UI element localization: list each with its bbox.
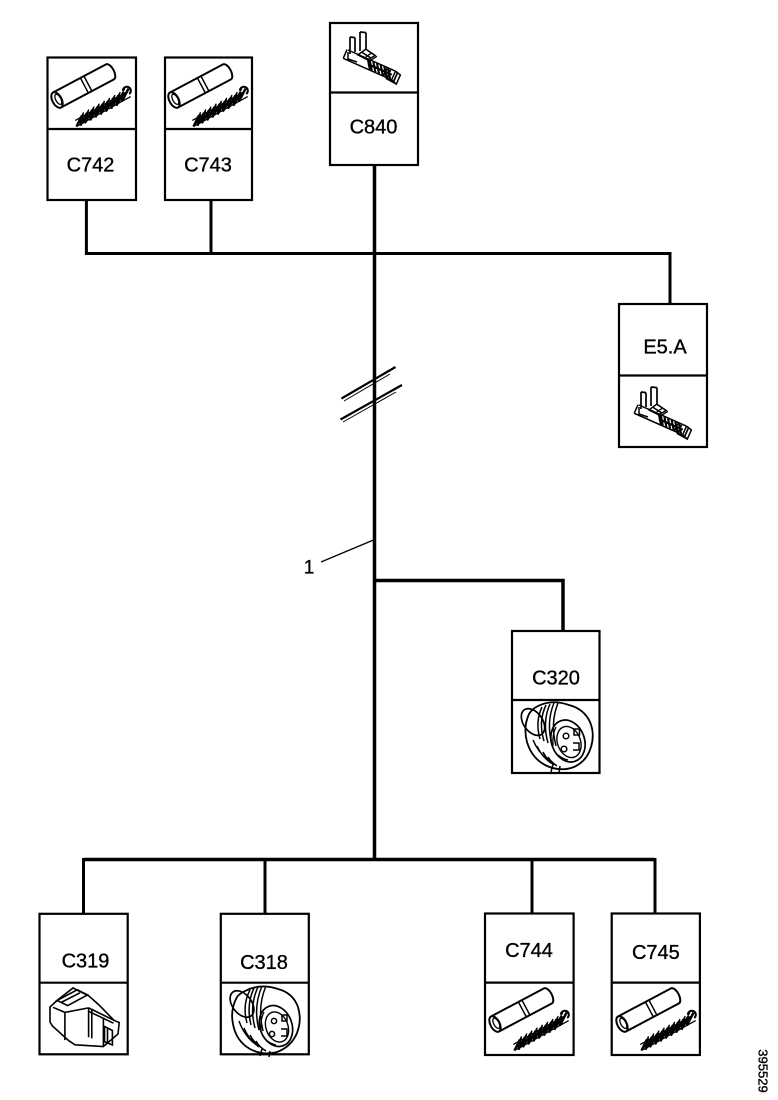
svg-text:395529: 395529 bbox=[756, 1049, 771, 1092]
svg-text:C744: C744 bbox=[505, 940, 553, 962]
svg-text:C743: C743 bbox=[184, 155, 232, 177]
svg-text:C840: C840 bbox=[350, 117, 398, 139]
svg-text:1: 1 bbox=[304, 558, 315, 579]
svg-text:C745: C745 bbox=[632, 942, 680, 964]
svg-text:C320: C320 bbox=[532, 668, 580, 690]
svg-text:E5.A: E5.A bbox=[643, 337, 687, 359]
svg-text:C742: C742 bbox=[67, 155, 115, 177]
svg-text:C318: C318 bbox=[240, 952, 288, 974]
svg-text:C319: C319 bbox=[62, 951, 110, 973]
